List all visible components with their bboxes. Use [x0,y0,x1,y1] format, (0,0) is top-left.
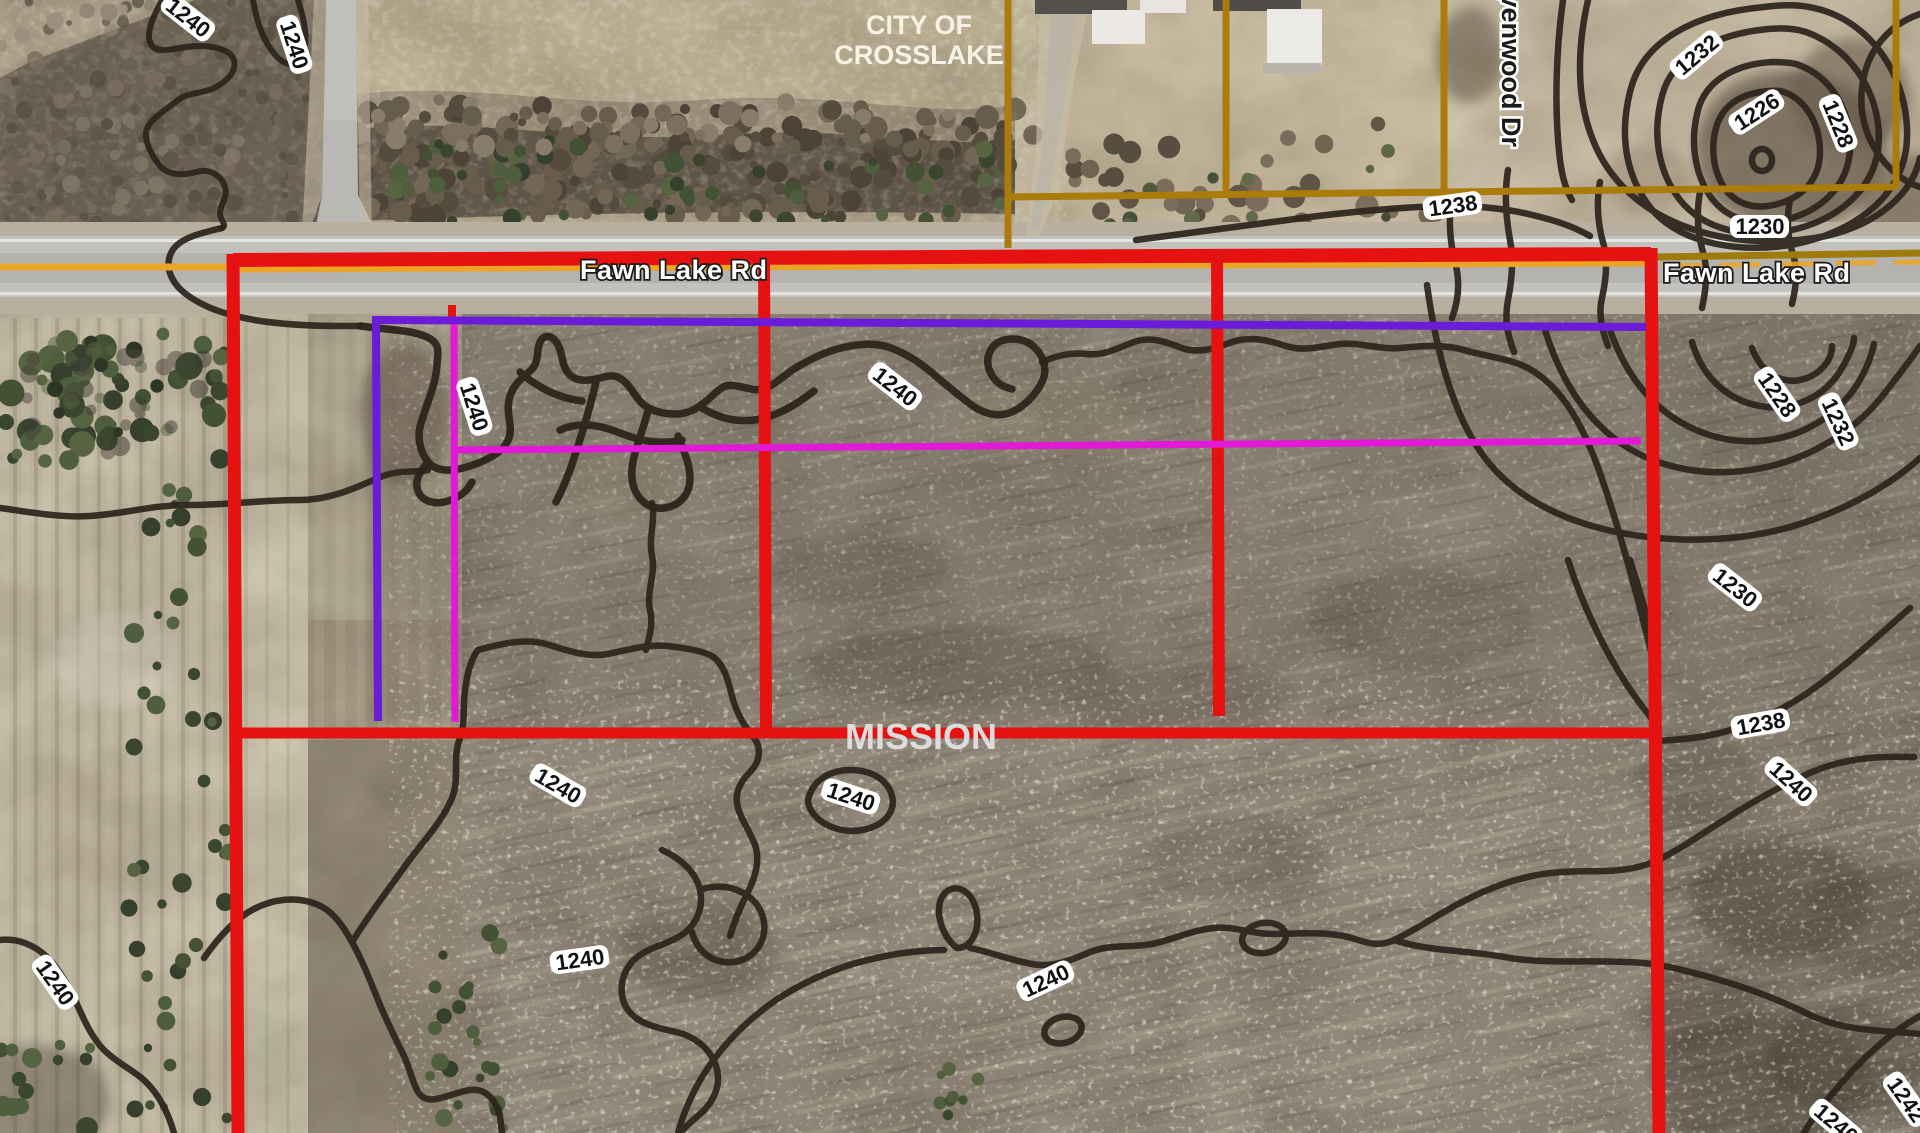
svg-text:Fawn Lake Rd: Fawn Lake Rd [580,255,768,285]
svg-text:Fawn Lake Rd: Fawn Lake Rd [1663,258,1851,288]
svg-text:CITY OF: CITY OF [866,10,972,40]
svg-text:1230: 1230 [1736,214,1785,239]
svg-text:CROSSLAKE: CROSSLAKE [834,40,1004,70]
svg-text:MISSION: MISSION [845,716,997,757]
svg-text:Ravenwood Dr: Ravenwood Dr [1496,0,1526,148]
